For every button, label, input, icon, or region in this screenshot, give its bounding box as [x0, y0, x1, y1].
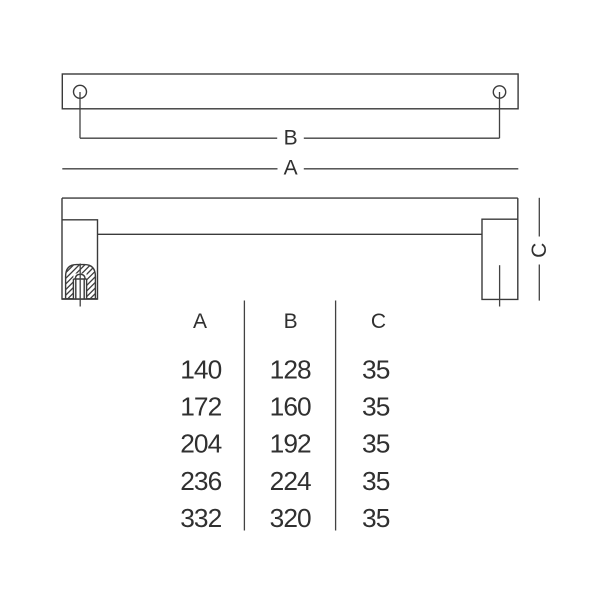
svg-text:B: B — [284, 127, 298, 150]
svg-text:236: 236 — [180, 466, 221, 496]
svg-text:35: 35 — [362, 466, 390, 496]
svg-text:35: 35 — [362, 503, 390, 533]
svg-text:320: 320 — [270, 503, 311, 533]
svg-text:C: C — [371, 310, 386, 333]
svg-text:C: C — [528, 243, 551, 258]
svg-text:224: 224 — [270, 466, 311, 496]
svg-text:172: 172 — [180, 392, 221, 422]
svg-text:35: 35 — [362, 392, 390, 422]
svg-text:A: A — [284, 157, 298, 180]
svg-text:332: 332 — [180, 503, 221, 533]
svg-text:128: 128 — [270, 355, 311, 385]
svg-text:35: 35 — [362, 355, 390, 385]
svg-text:204: 204 — [180, 429, 221, 459]
svg-text:A: A — [193, 310, 207, 333]
svg-text:160: 160 — [270, 392, 311, 422]
svg-text:192: 192 — [270, 429, 311, 459]
svg-text:35: 35 — [362, 429, 390, 459]
svg-text:B: B — [284, 310, 298, 333]
svg-text:140: 140 — [180, 355, 221, 385]
